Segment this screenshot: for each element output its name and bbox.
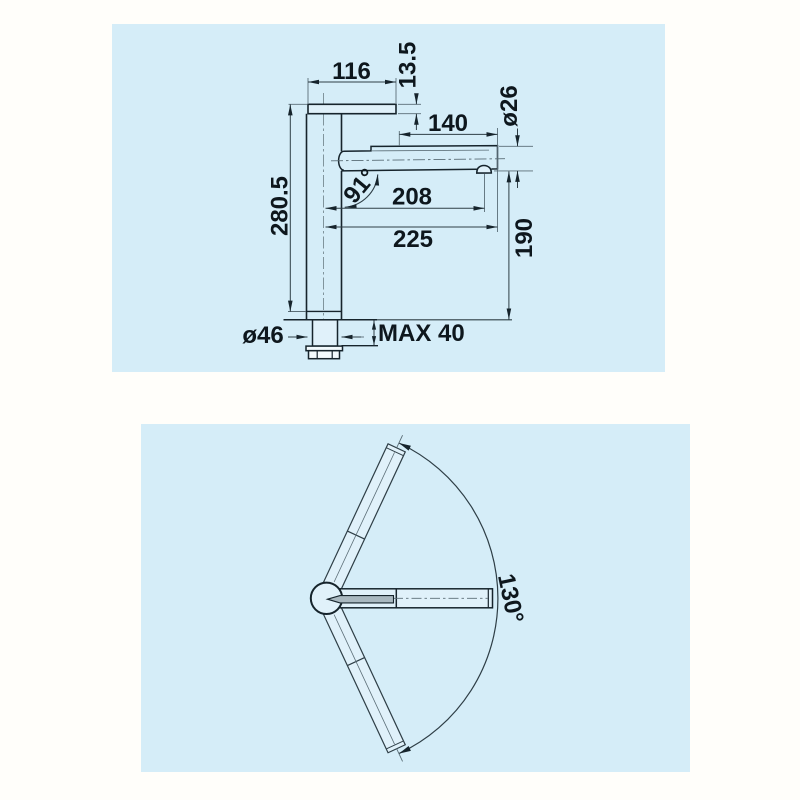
- svg-text:116: 116: [332, 58, 371, 85]
- svg-text:MAX 40: MAX 40: [378, 320, 465, 347]
- svg-text:280.5: 280.5: [267, 176, 294, 236]
- svg-text:ø46: ø46: [242, 322, 283, 349]
- svg-text:13.5: 13.5: [395, 42, 422, 89]
- svg-text:225: 225: [393, 226, 433, 253]
- svg-text:140: 140: [428, 110, 468, 137]
- svg-text:190: 190: [511, 218, 538, 258]
- svg-text:208: 208: [392, 184, 432, 211]
- svg-text:ø26: ø26: [496, 85, 523, 126]
